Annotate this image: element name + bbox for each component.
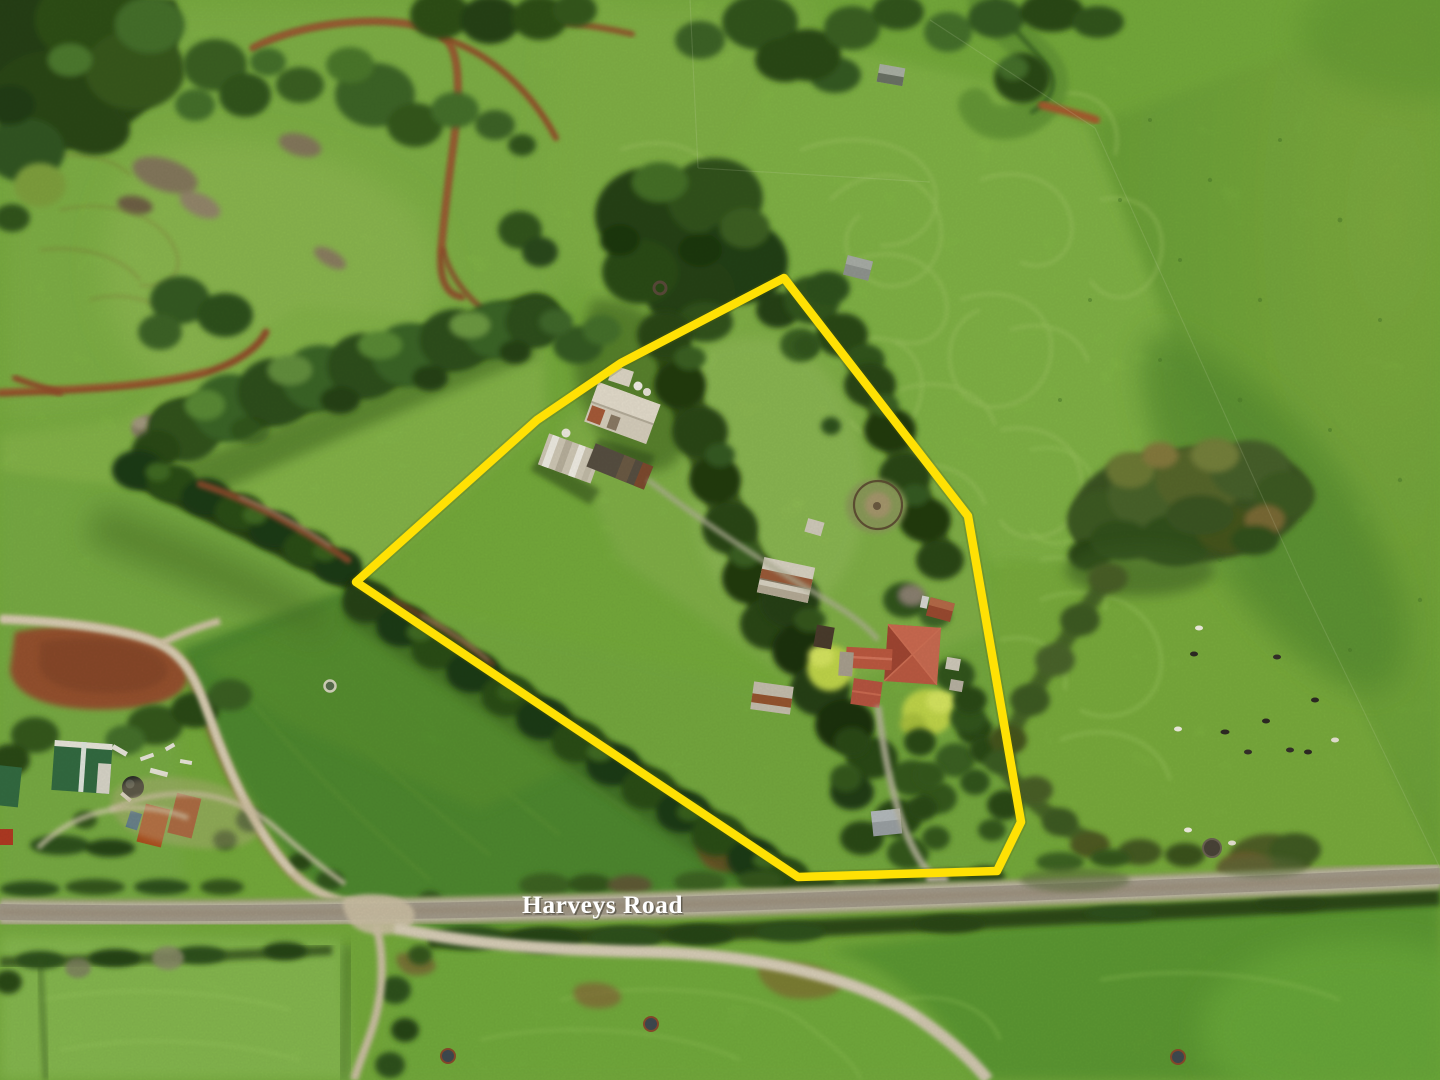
svg-text:Harveys Road: Harveys Road (522, 890, 683, 919)
